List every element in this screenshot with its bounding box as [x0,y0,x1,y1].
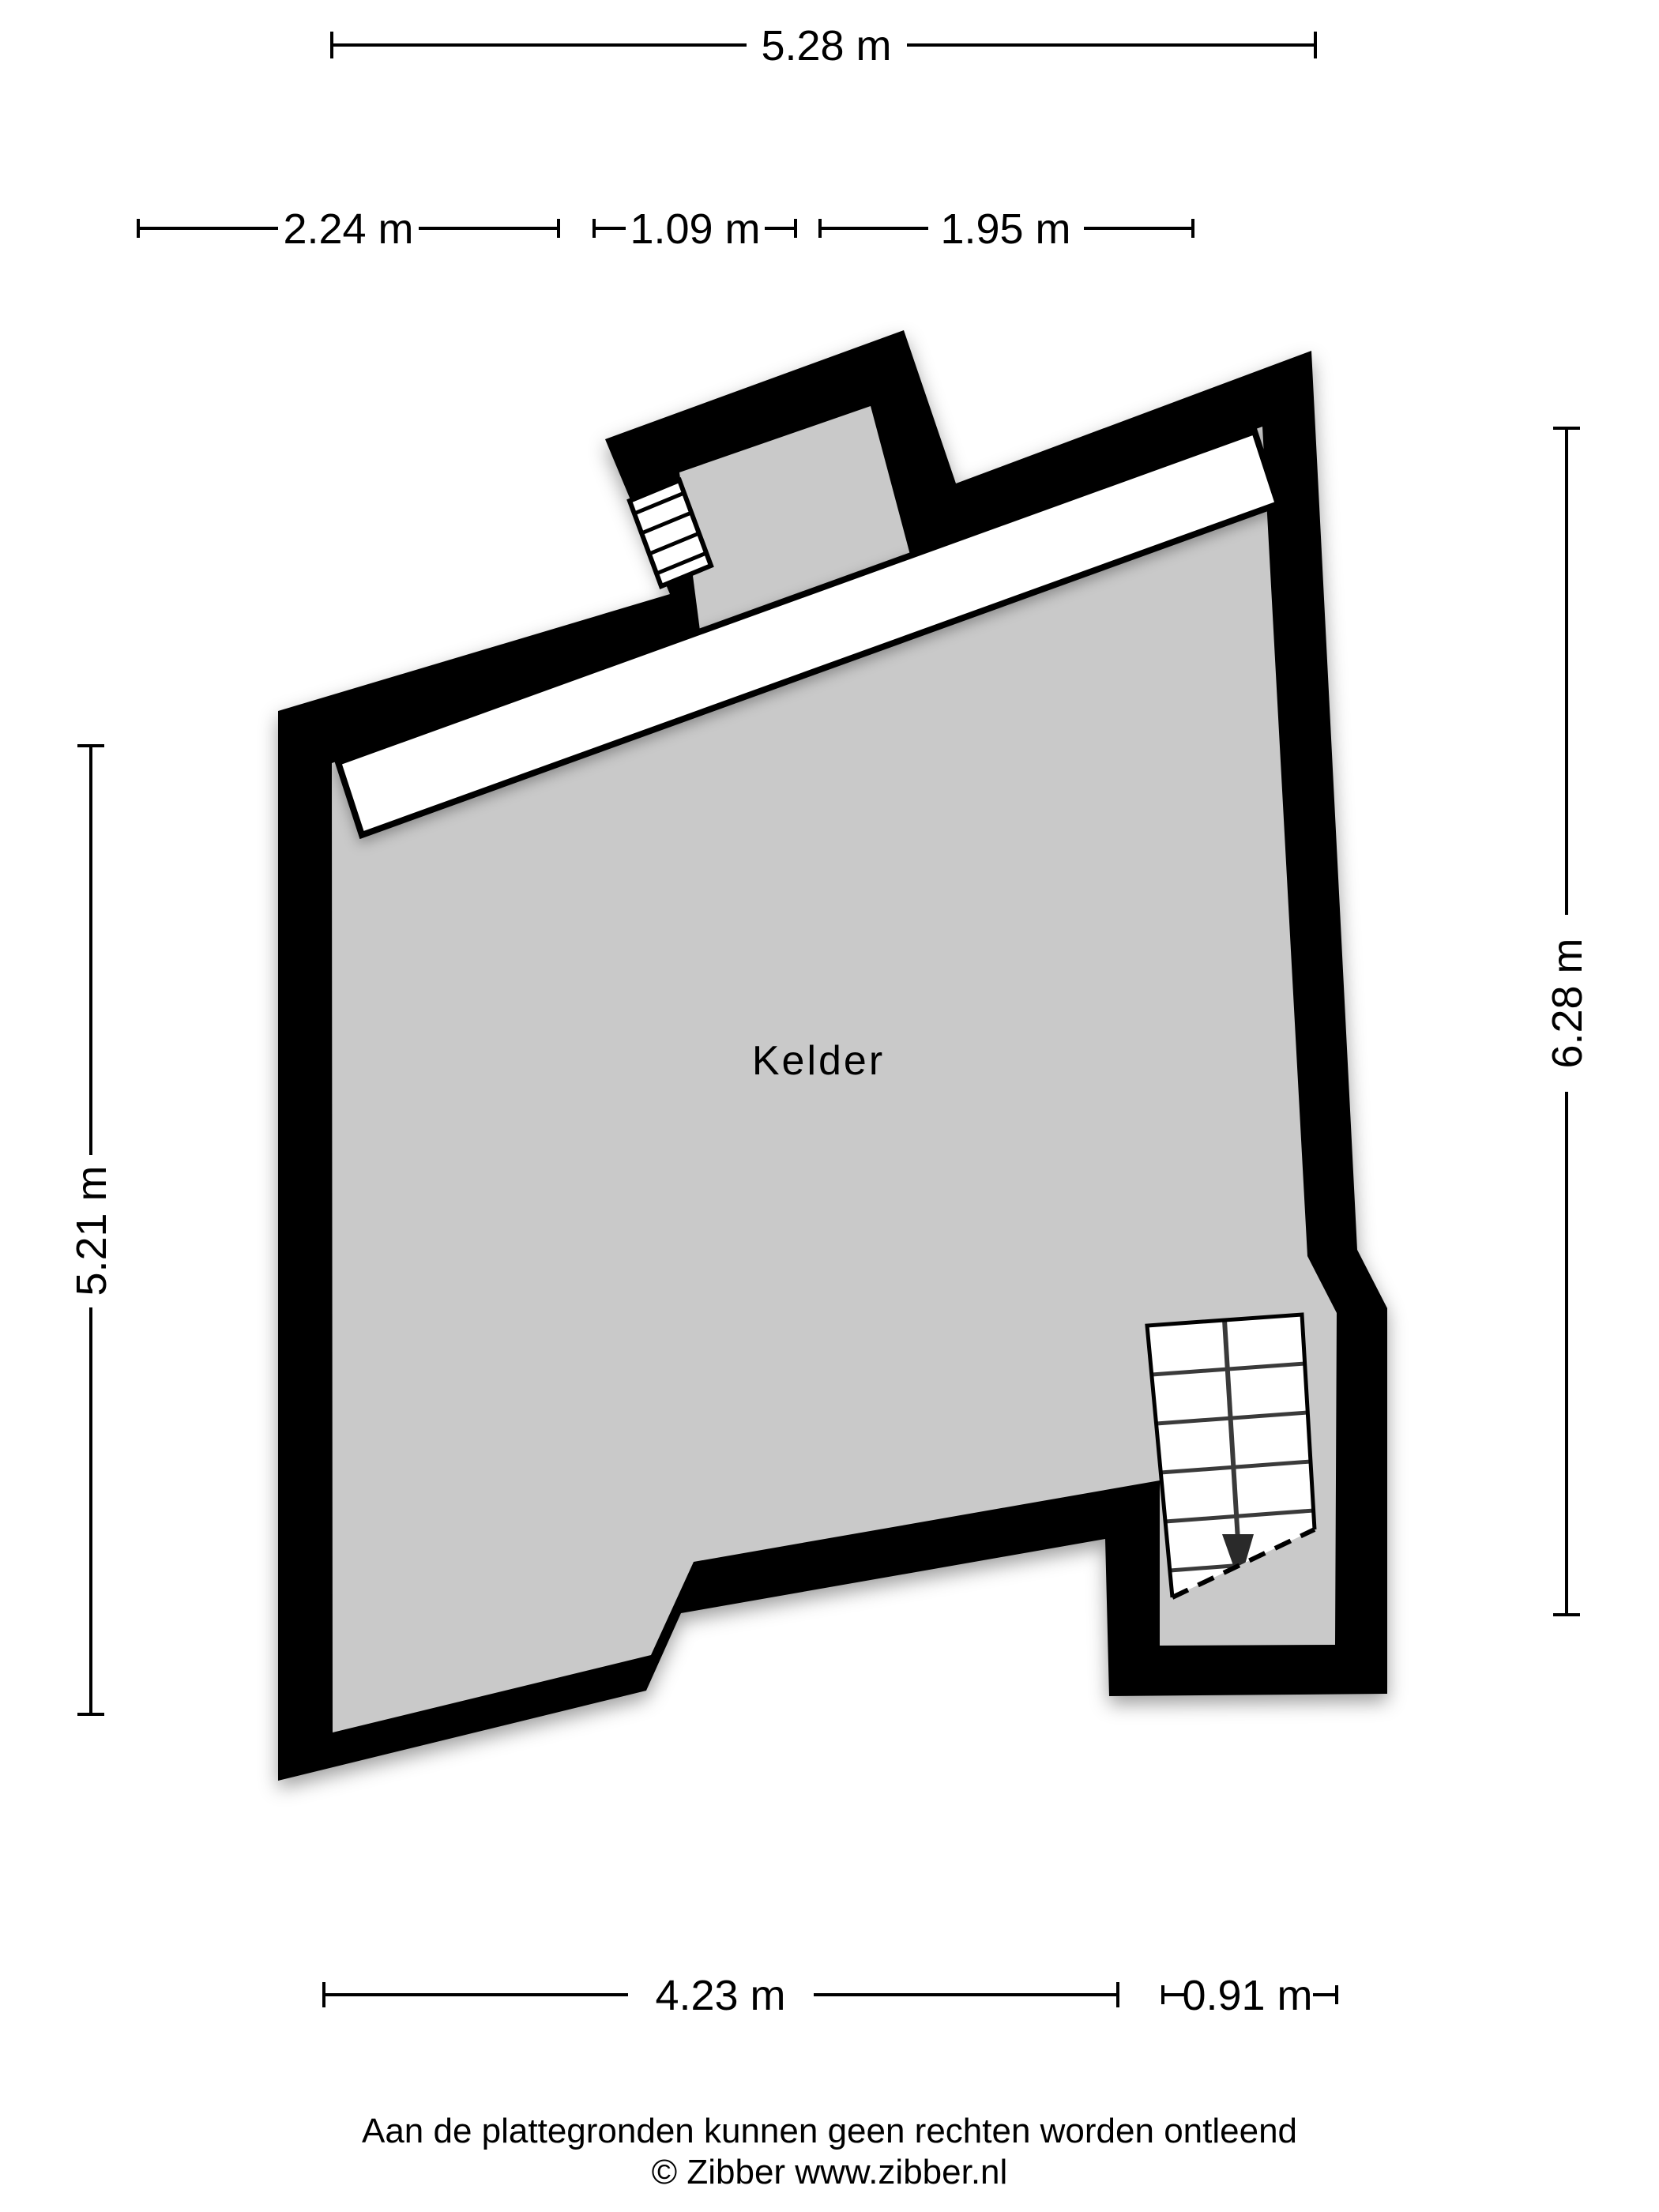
dim-label-bottom-1: 4.23 m [655,1972,785,2019]
dim-label-left: 5.21 m [68,1165,115,1296]
dim-label-row2-3: 1.95 m [940,205,1070,253]
footer: Aan de plattegronden kunnen geen rechten… [362,2112,1297,2191]
dimension-right: 6.28 m [1544,428,1591,1615]
dimension-bottom: 4.23 m 0.91 m [324,1972,1337,2019]
dim-label-row2-1: 2.24 m [283,205,413,253]
dimension-top: 5.28 m [332,22,1315,70]
dimension-row2: 2.24 m 1.09 m 1.95 m [138,205,1193,253]
dim-label-row2-2: 1.09 m [630,205,760,253]
footer-copyright: © Zibber www.zibber.nl [652,2153,1008,2191]
floorplan-page: Kelder 5.28 m 2.24 m 1.09 m 1.95 m 5.21 … [0,0,1659,2212]
building: Kelder [278,330,1387,1781]
footer-disclaimer: Aan de plattegronden kunnen geen rechten… [362,2112,1297,2150]
room-label: Kelder [752,1038,885,1084]
dim-label-right: 6.28 m [1544,938,1591,1068]
dim-label-bottom-2: 0.91 m [1182,1972,1312,2019]
floorplan-canvas: Kelder 5.28 m 2.24 m 1.09 m 1.95 m 5.21 … [0,0,1659,2212]
dim-label-top: 5.28 m [761,22,891,70]
dimension-left: 5.21 m [68,746,115,1714]
